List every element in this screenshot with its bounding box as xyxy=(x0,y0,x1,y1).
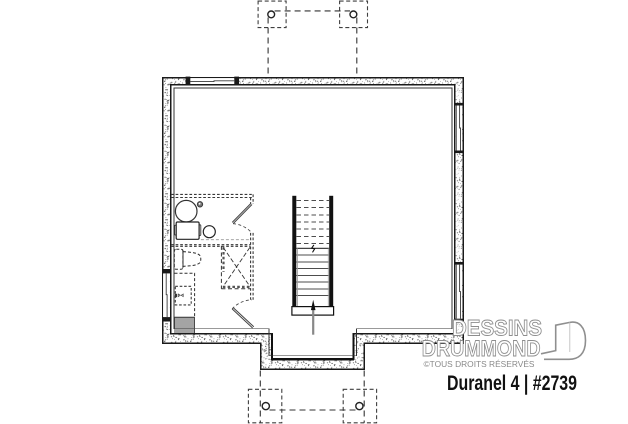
svg-text:DRUMMOND: DRUMMOND xyxy=(422,336,541,361)
svg-text:Duranel 4 | #2739: Duranel 4 | #2739 xyxy=(447,372,577,395)
svg-text:©TOUS DROITS RÉSERVÉS: ©TOUS DROITS RÉSERVÉS xyxy=(424,359,535,369)
